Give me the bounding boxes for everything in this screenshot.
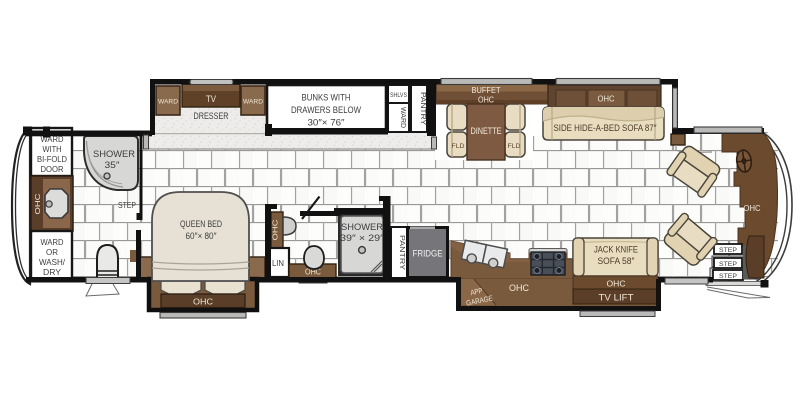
svg-text:WITH: WITH — [43, 144, 62, 154]
svg-text:OHC: OHC — [33, 193, 42, 215]
svg-text:SIDE HIDE-A-BED SOFA 87″: SIDE HIDE-A-BED SOFA 87″ — [554, 123, 658, 133]
svg-text:30″× 76″: 30″× 76″ — [308, 118, 346, 128]
svg-text:STEP: STEP — [719, 261, 738, 268]
svg-text:DINETTE: DINETTE — [471, 126, 502, 136]
svg-text:PANTRY: PANTRY — [398, 235, 407, 270]
svg-text:OHC: OHC — [193, 297, 213, 307]
svg-text:LIN: LIN — [272, 259, 284, 268]
svg-text:39″ × 29″: 39″ × 29″ — [340, 233, 385, 243]
svg-text:OHC: OHC — [478, 96, 494, 105]
svg-text:TV: TV — [206, 94, 216, 104]
svg-text:JACK KNIFE: JACK KNIFE — [594, 245, 638, 255]
svg-text:STEP: STEP — [719, 273, 738, 280]
svg-text:OHC: OHC — [607, 279, 626, 289]
svg-text:WARD: WARD — [399, 107, 408, 128]
svg-text:SHLVS: SHLVS — [390, 93, 407, 99]
svg-text:BUNKS WITH: BUNKS WITH — [302, 93, 351, 103]
svg-text:STEP: STEP — [719, 247, 738, 254]
svg-text:DRAWERS BELOW: DRAWERS BELOW — [291, 105, 361, 115]
svg-text:SOFA 58″: SOFA 58″ — [598, 256, 636, 266]
svg-text:TV LIFT: TV LIFT — [599, 293, 635, 303]
svg-text:BUFFET: BUFFET — [472, 86, 501, 95]
svg-text:OHC: OHC — [271, 220, 280, 241]
svg-text:WARD: WARD — [41, 237, 64, 247]
svg-text:DRY: DRY — [43, 267, 61, 277]
svg-text:FRIDGE: FRIDGE — [413, 249, 443, 259]
svg-text:WARD: WARD — [243, 99, 263, 106]
svg-text:DRESSER: DRESSER — [194, 110, 229, 121]
svg-text:SHOWER: SHOWER — [93, 149, 136, 159]
svg-text:FLD: FLD — [452, 143, 465, 150]
svg-text:DOOR: DOOR — [41, 164, 64, 174]
svg-text:PANTRY: PANTRY — [419, 92, 428, 125]
svg-text:STEP: STEP — [118, 201, 136, 210]
svg-text:OHC: OHC — [744, 204, 761, 213]
svg-text:OHC: OHC — [598, 94, 615, 104]
svg-text:FLD: FLD — [508, 143, 521, 150]
svg-text:35″: 35″ — [105, 160, 121, 170]
svg-text:OR: OR — [46, 247, 58, 257]
svg-text:BI-FOLD: BI-FOLD — [37, 154, 67, 164]
svg-text:QUEEN BED: QUEEN BED — [180, 219, 222, 229]
svg-text:SHOWER: SHOWER — [341, 222, 384, 232]
svg-text:60″× 80″: 60″× 80″ — [186, 231, 218, 241]
svg-text:WASH/: WASH/ — [39, 257, 66, 267]
svg-text:OHC: OHC — [509, 282, 529, 293]
svg-text:WARD: WARD — [158, 99, 178, 106]
